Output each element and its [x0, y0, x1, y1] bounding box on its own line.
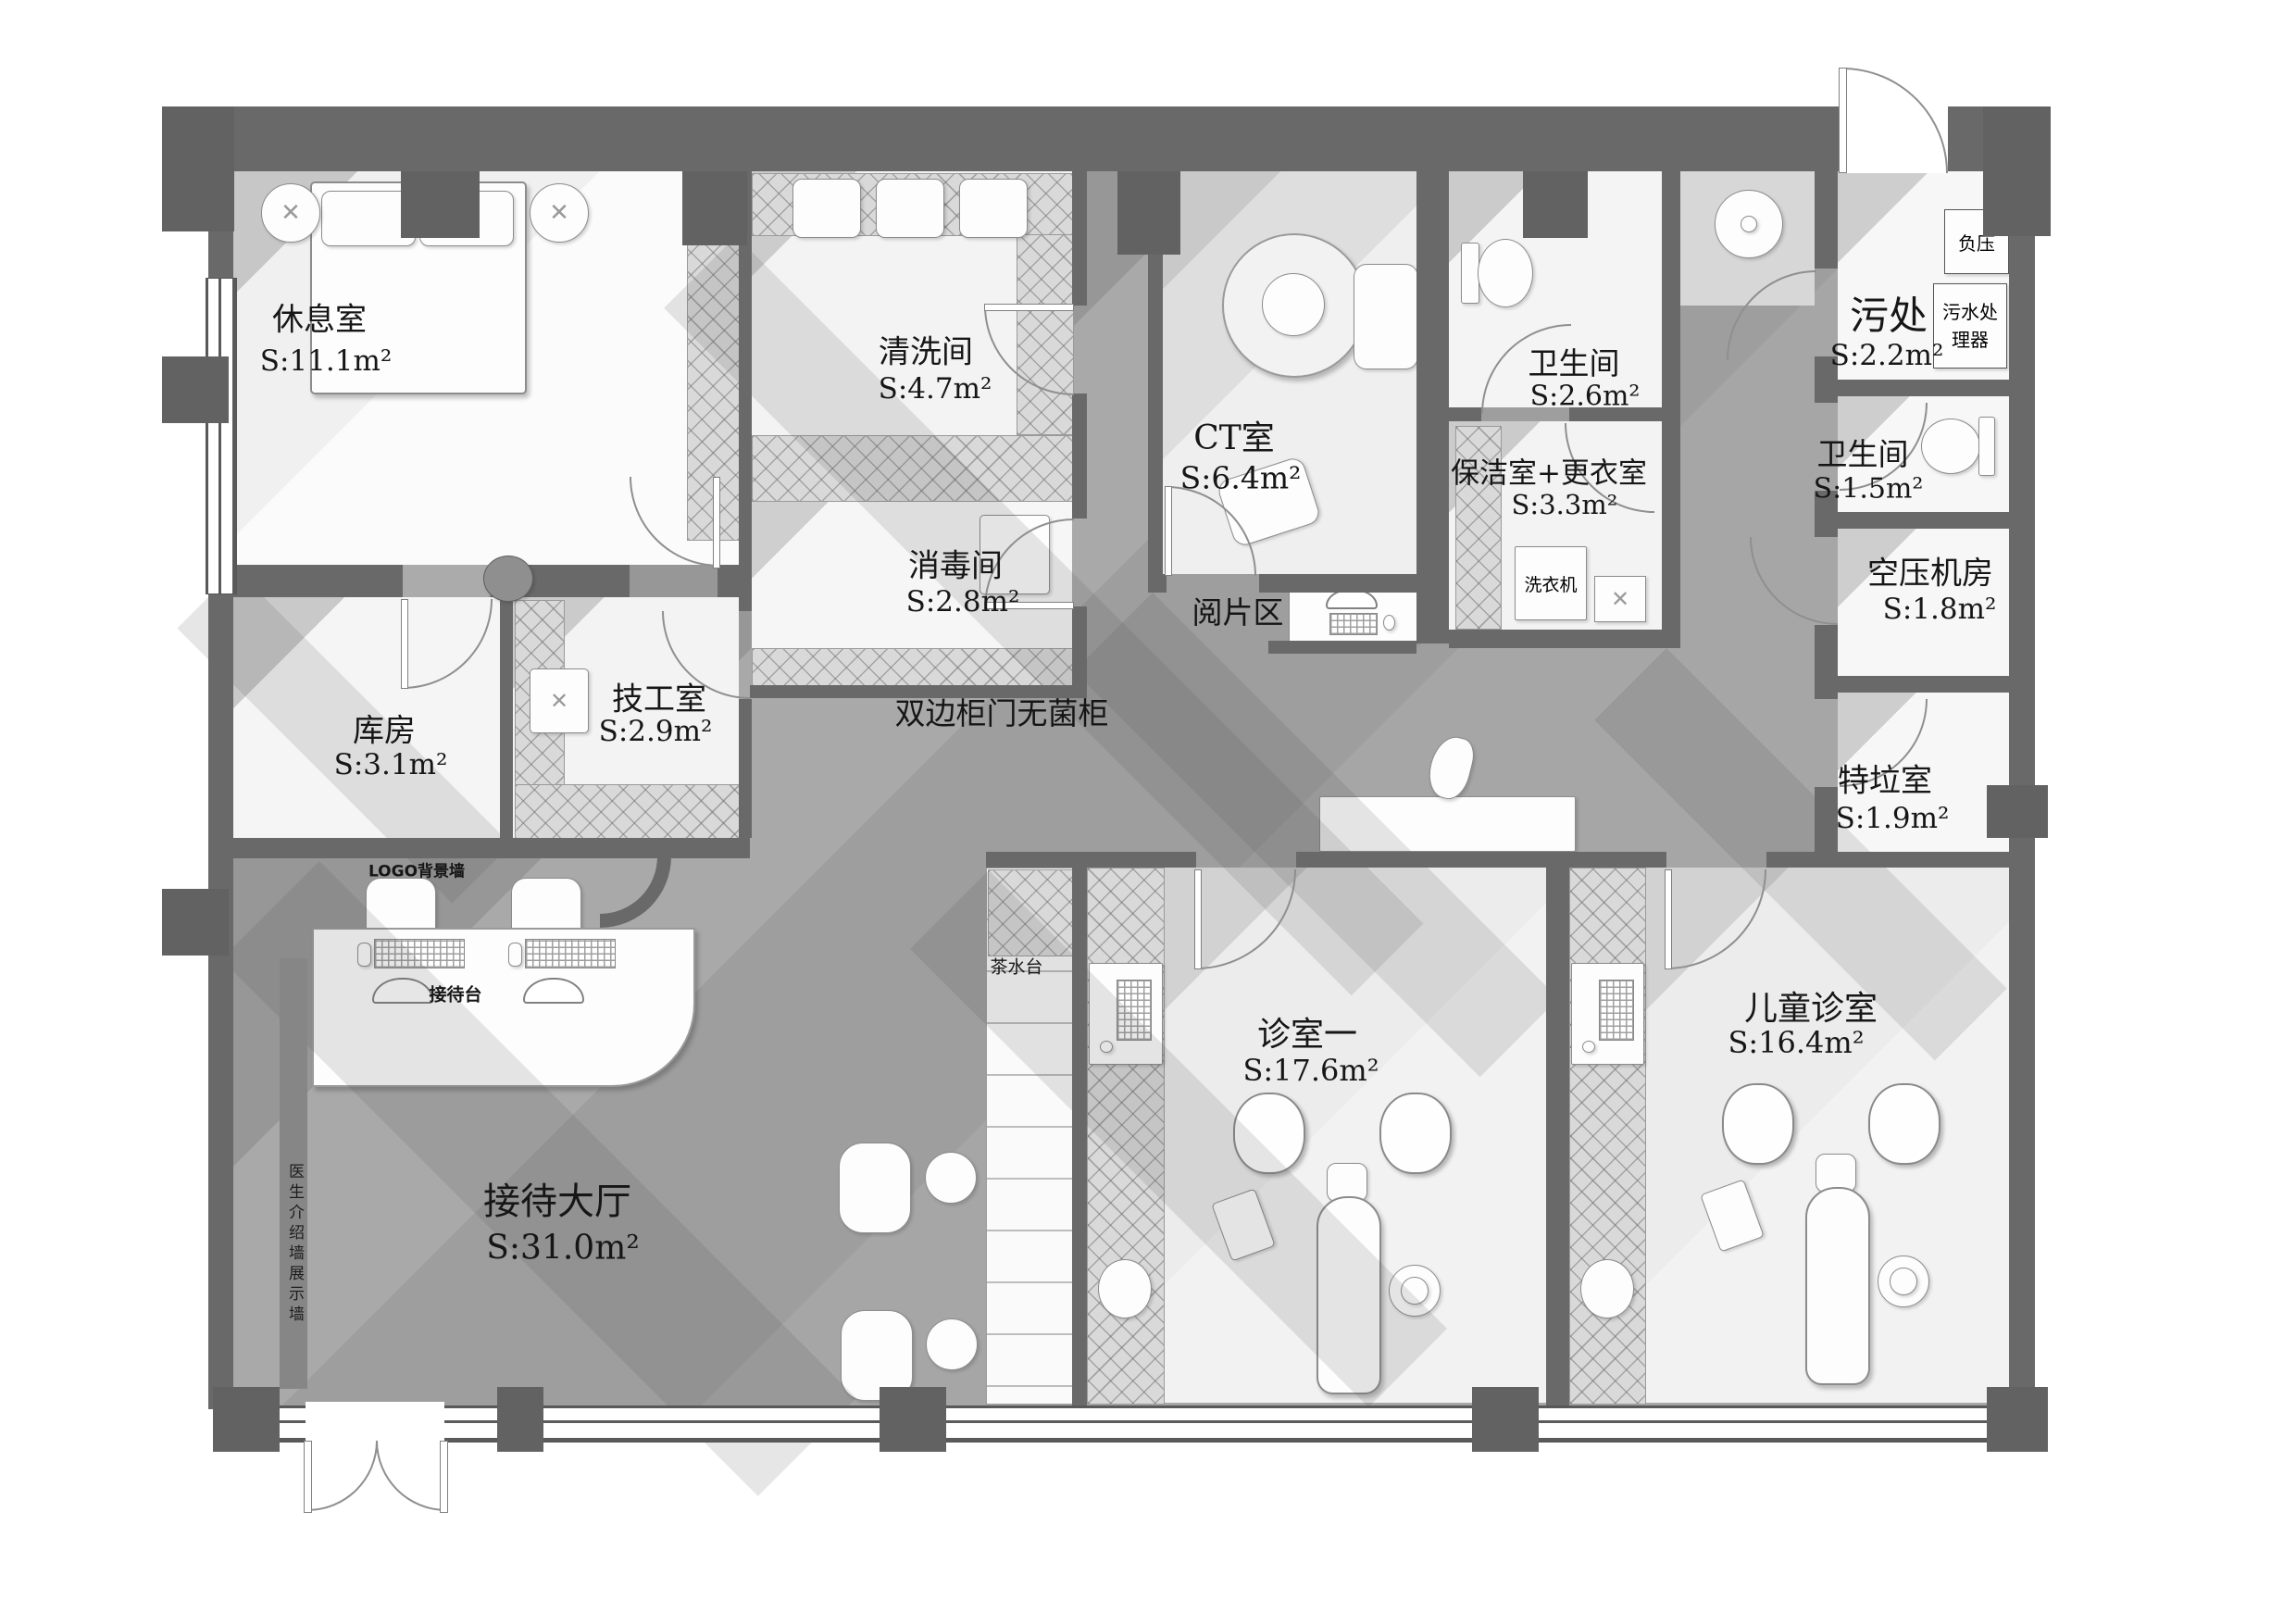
label-wash-area: S:4.7m² — [879, 372, 992, 406]
label-ct-name: CT室 — [1193, 411, 1275, 459]
wall — [1815, 171, 1838, 269]
keyboard — [1117, 980, 1152, 1041]
armchair — [839, 1143, 911, 1233]
label-storage-name: 库房 — [353, 706, 416, 751]
wall — [1148, 574, 1167, 593]
column — [162, 889, 229, 956]
door-leaf — [401, 599, 408, 689]
sink — [792, 179, 861, 238]
column — [1117, 171, 1180, 255]
wall — [1449, 630, 1662, 648]
wall — [1072, 868, 1087, 1405]
wall — [1546, 868, 1569, 1405]
door-leaf — [713, 477, 720, 568]
label-toilet2-name: 卫生间 — [1817, 430, 1909, 474]
side-table — [925, 1152, 977, 1204]
floor-drain: ✕ — [1594, 576, 1646, 622]
door-leaf — [440, 1441, 448, 1513]
label-tech-area: S:2.9m² — [599, 715, 713, 748]
basin-drain — [1741, 216, 1757, 232]
label-storage-area: S:3.1m² — [334, 748, 448, 781]
mouse — [1582, 1041, 1595, 1053]
sterile-cabinet-strip — [752, 648, 1074, 687]
door-leaf — [304, 1441, 312, 1513]
label-logo-wall: LOGO背景墙 — [368, 858, 465, 881]
label-doctor-wall: 医生介绍墙展示墙 — [283, 1163, 306, 1326]
sink — [876, 179, 944, 238]
wall — [1296, 852, 1666, 868]
label-hall-area: S:31.0m² — [486, 1230, 640, 1268]
phone — [508, 943, 522, 967]
stool — [1379, 1093, 1452, 1174]
wall — [1072, 394, 1087, 518]
label-toilet2-area: S:1.5m² — [1814, 473, 1924, 506]
strip-sink — [1580, 1259, 1634, 1318]
wall — [1449, 407, 1481, 421]
wall — [1815, 625, 1838, 699]
wall — [231, 565, 403, 597]
entrance-opening — [306, 1402, 444, 1444]
mouse — [1100, 1041, 1113, 1053]
door-leaf — [1165, 486, 1172, 576]
label-compressor-area: S:1.8m² — [1883, 593, 1997, 626]
door-leaf — [1839, 68, 1847, 173]
keyboard — [1599, 980, 1634, 1041]
label-disinfect-area: S:2.8m² — [906, 585, 1020, 618]
label-cleaning-area: S:3.3m² — [1512, 489, 1618, 520]
entrance-door-arc — [307, 1441, 378, 1511]
ct-scanner-bore — [1262, 273, 1325, 336]
door-leaf — [984, 304, 1074, 311]
wall — [1072, 606, 1087, 685]
label-toilet1-name: 卫生间 — [1529, 339, 1620, 383]
label-rest-name: 休息室 — [272, 294, 367, 340]
keyboard — [1329, 613, 1378, 635]
dental-chair — [1316, 1196, 1381, 1394]
console-table — [1319, 796, 1576, 852]
label-waste-area: S:1.9m² — [1836, 802, 1950, 835]
logo-wall — [231, 838, 750, 858]
ct-couch — [1354, 264, 1418, 369]
label-tea-station: 茶水台 — [990, 954, 1042, 979]
keyboard — [374, 939, 465, 968]
stool — [1868, 1083, 1940, 1165]
column — [1472, 1387, 1539, 1452]
column — [162, 356, 229, 423]
label-film-reading: 阅片区 — [1192, 588, 1284, 632]
clinic1-cabinet-strip — [1087, 868, 1165, 1405]
stool — [1233, 1093, 1305, 1174]
label-rest-area: S:11.1m² — [260, 344, 393, 378]
door-leaf — [1194, 869, 1202, 969]
phone — [357, 943, 371, 967]
label-ct-area: S:6.4m² — [1180, 460, 1302, 496]
column — [1987, 1387, 2048, 1452]
tech-counter-bottom — [515, 784, 741, 840]
door-leaf — [1665, 869, 1672, 969]
nightstand: ✕ — [530, 183, 589, 243]
column — [213, 1387, 280, 1452]
wall — [1662, 171, 1680, 648]
label-clinic1-name: 诊室一 — [1257, 1007, 1357, 1056]
wall — [986, 852, 1196, 868]
wall — [1766, 852, 2009, 868]
spittoon-bowl — [1401, 1277, 1429, 1305]
pass-through-cabinet — [752, 435, 1074, 502]
column — [497, 1387, 543, 1452]
plant — [483, 556, 533, 602]
toilet-tank — [1978, 417, 1995, 476]
label-sterile-cabinet: 双边柜门无菌柜 — [895, 689, 1109, 733]
label-cleaning-name: 保洁室+更衣室 — [1451, 450, 1647, 492]
tea-top-cabinet — [988, 869, 1074, 956]
wall — [500, 597, 513, 838]
nightstand: ✕ — [261, 183, 320, 243]
wall — [1838, 676, 2009, 693]
column — [1523, 171, 1588, 238]
washing-machine: 洗衣机 — [1515, 546, 1587, 620]
mouse — [1383, 615, 1395, 631]
column — [880, 1387, 946, 1452]
label-wash-name: 清洗间 — [879, 327, 973, 372]
column — [401, 171, 480, 238]
wall — [162, 106, 2051, 171]
wall — [739, 699, 752, 838]
label-clinic1-area: S:17.6m² — [1242, 1053, 1379, 1088]
toilet-bowl — [1478, 239, 1533, 307]
column — [682, 171, 747, 245]
label-disinfect-name: 消毒间 — [908, 541, 1003, 586]
sink — [959, 179, 1028, 238]
column — [1987, 785, 2048, 838]
label-kids-name: 儿童诊室 — [1744, 981, 1878, 1030]
label-dirty-name: 污处 — [1850, 285, 1928, 342]
keyboard — [525, 939, 616, 968]
spittoon-bowl — [1890, 1268, 1917, 1295]
label-dirty-area: S:2.2m² — [1830, 339, 1944, 372]
toilet-tank — [1461, 243, 1479, 304]
strip-sink — [1098, 1259, 1152, 1318]
wall — [1072, 171, 1087, 306]
label-waste-name: 特垃室 — [1838, 756, 1932, 801]
column — [162, 106, 234, 231]
tech-sink: ✕ — [530, 668, 589, 733]
sewage-treater-box: 污水处理器 — [1933, 283, 2007, 369]
wall — [1838, 512, 2009, 529]
dental-chair — [1805, 1187, 1870, 1385]
floor-plan: ✕ ✕ 负压 污水处理器 洗衣机 ✕ ✕ — [0, 0, 2296, 1624]
wall — [1416, 171, 1449, 643]
side-table — [926, 1318, 978, 1370]
label-tech-name: 技工室 — [612, 674, 706, 719]
toilet-bowl — [1921, 418, 1980, 474]
door-arc — [1842, 68, 1948, 173]
column — [1983, 106, 2051, 236]
wall — [1838, 380, 2009, 396]
label-toilet1-area: S:2.6m² — [1530, 381, 1641, 413]
window — [206, 278, 237, 594]
label-compressor-name: 空压机房 — [1867, 548, 1993, 593]
label-kids-area: S:16.4m² — [1728, 1025, 1864, 1060]
label-hall-name: 接待大厅 — [483, 1171, 631, 1225]
label-reception-desk: 接待台 — [429, 981, 481, 1006]
stool — [1722, 1083, 1794, 1165]
entrance-door-arc — [376, 1441, 446, 1511]
wall — [717, 565, 739, 597]
wall — [1268, 641, 1416, 654]
kids-cabinet-strip — [1569, 868, 1646, 1405]
